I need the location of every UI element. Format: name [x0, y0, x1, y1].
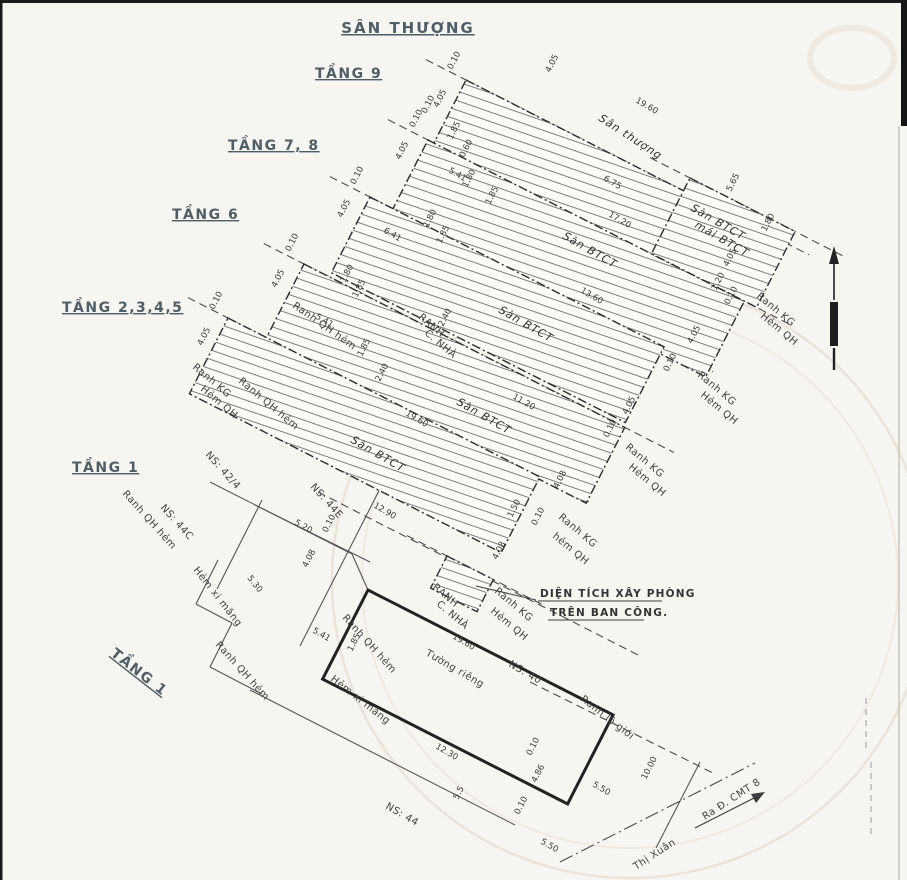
scan-border-right	[901, 0, 907, 126]
stamp-remnant	[810, 28, 894, 88]
floor-label-tang2345: TẦNG 2,3,4,5	[62, 297, 183, 316]
dimension-label: 0.10	[446, 50, 464, 71]
boundary-label: NS: 44E	[308, 482, 345, 521]
dimension-label: 0.10	[208, 290, 226, 311]
dimension-label: 5.41	[311, 626, 332, 644]
dimension-label: 5.50	[591, 780, 612, 798]
floor-label-tang6: TẦNG 6	[172, 204, 239, 223]
dimension-label: 5.65	[725, 172, 743, 193]
alley-line	[656, 762, 700, 848]
dimension-label: 10.00	[640, 755, 660, 781]
dimension-label: 12.90	[372, 501, 398, 522]
floor-label-tang1a: TẦNG 1	[72, 457, 139, 476]
boundary-label: Ra Đ. CMT 8	[701, 777, 763, 823]
floor-label-tang1b: TẦNG 1	[108, 643, 173, 699]
floor-label-tang9: TẦNG 9	[315, 63, 382, 82]
dimension-label: 0.10	[530, 506, 548, 527]
boundary-label: Ranh QH hẻm	[213, 639, 272, 703]
site-plan-drawing: Sân thượngSàn BTCTSàn BTCTmái BTCTSàn BT…	[0, 0, 907, 880]
page-title: SÂN THƯỢNG	[341, 18, 474, 37]
dimension-label: 4.05	[270, 268, 288, 289]
dimension-label: 4.05	[196, 326, 214, 347]
dimension-label: 4.05	[394, 140, 412, 161]
boundary-label: Hẻm xi măng	[191, 564, 245, 629]
scan-border-top	[0, 0, 907, 3]
dimension-label: 19.60	[451, 632, 477, 653]
boundary-label: NS: 40	[507, 659, 544, 687]
dimension-label: 12.30	[434, 742, 460, 763]
boundary-label: Thị Xuân	[630, 836, 678, 873]
callout-line2: TRÊN BAN CÔNG.	[550, 606, 668, 619]
dimension-label: 5.30	[245, 574, 265, 595]
dimension-label: 0.10	[513, 795, 531, 816]
dimension-label: 5.50	[539, 837, 560, 855]
dimension-label: 0.10	[284, 232, 302, 253]
dimension-label: 19.60	[634, 96, 660, 117]
boundary-label: Tường riêng	[423, 647, 487, 691]
scan-border-left	[0, 0, 3, 880]
callout-line1: DIỆN TÍCH XÂY PHÒNG	[540, 587, 696, 600]
boundary-label: Hẻm xi măng	[328, 673, 393, 727]
floor-label-tang78: TẦNG 7, 8	[228, 135, 320, 154]
boundary-label: NS: 44	[384, 801, 421, 829]
dimension-label: 4.05	[544, 53, 562, 74]
boundary-label: Ranh lộ giới	[578, 693, 636, 742]
boundary-label: NS: 42/4	[203, 450, 243, 492]
dimension-label: 0.10	[349, 165, 367, 186]
plan-svg: Sân thượngSàn BTCTSàn BTCTmái BTCTSàn BT…	[0, 0, 907, 880]
north-arrow-icon	[829, 246, 839, 370]
dimension-label: 4.86	[530, 763, 548, 784]
dimension-label: 4.05	[336, 198, 354, 219]
dimension-label: 4.08	[301, 548, 319, 569]
dimension-label: 0.10	[525, 736, 543, 757]
